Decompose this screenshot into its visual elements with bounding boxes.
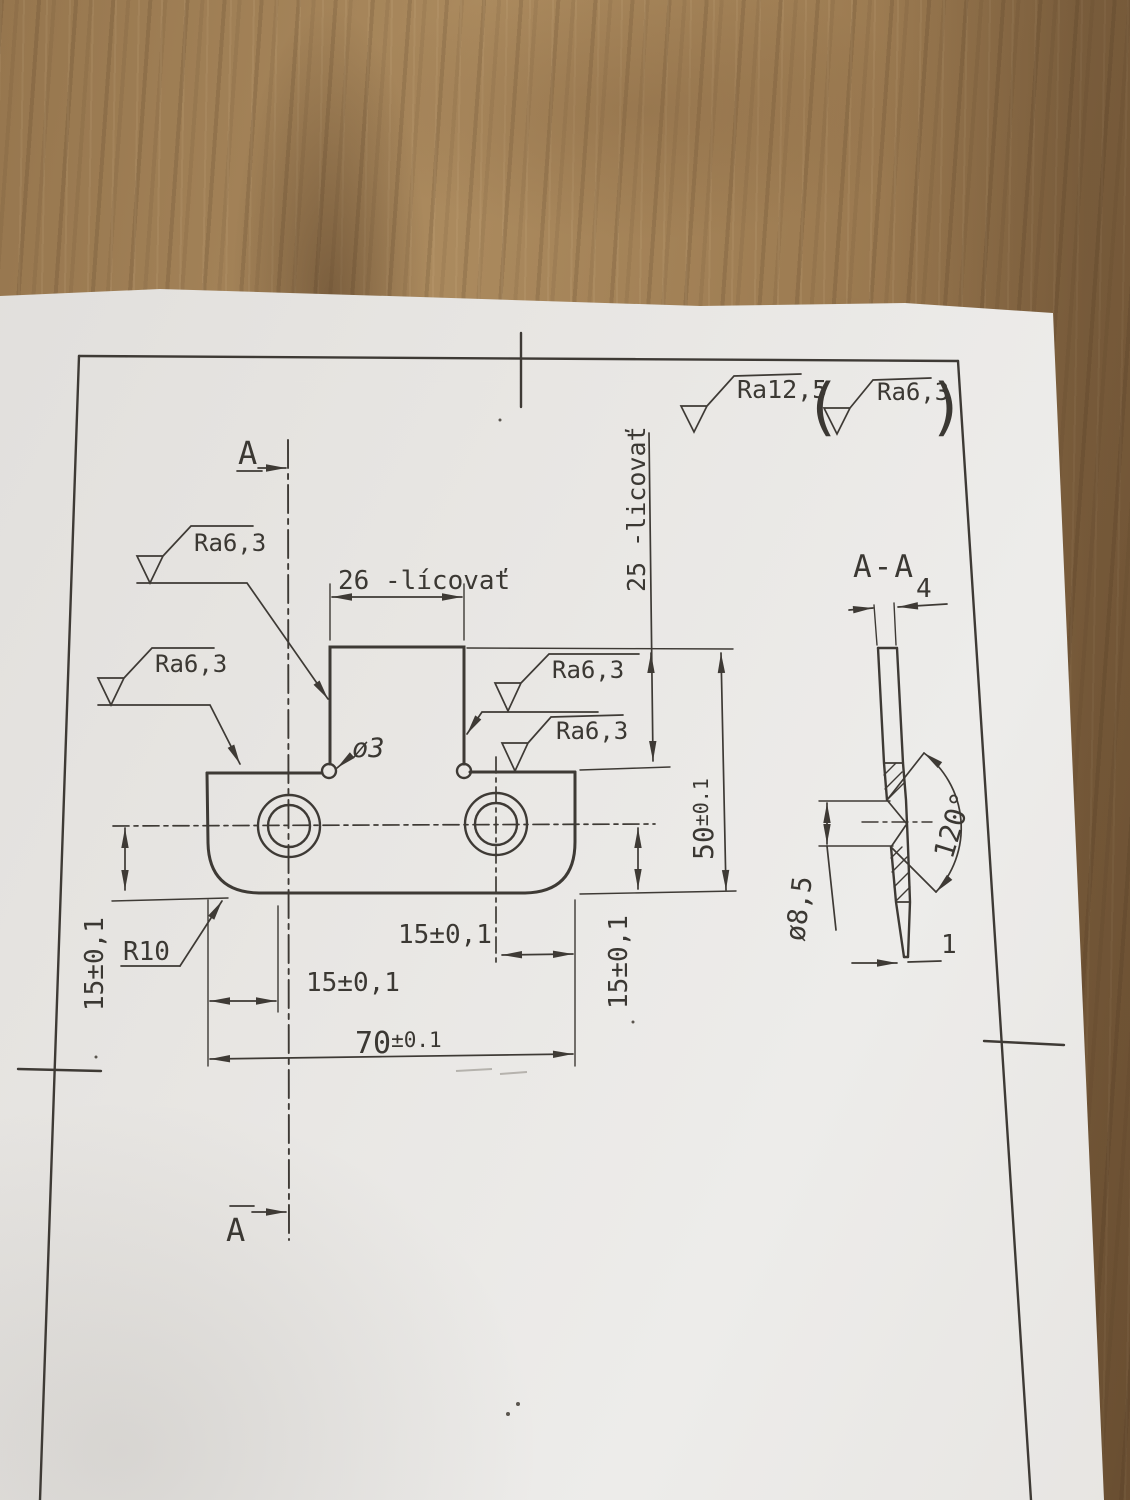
dim-hole-from-right: 15±0,1	[398, 920, 573, 955]
dim-total-width-tol: ±0.1	[391, 1028, 442, 1052]
dim-thickness-label: 4	[916, 574, 932, 604]
section-body	[862, 648, 932, 957]
dim-tab-width: 26 -lícovať	[330, 566, 510, 640]
paren-close: )	[928, 370, 965, 443]
dim-hole-from-left-label: 15±0,1	[306, 968, 400, 998]
section-title: A-A	[853, 549, 915, 585]
drawing-frame	[18, 333, 1064, 1500]
corner-radius-label: R10	[123, 937, 170, 967]
dim-hole-height-left: 15±0,1	[80, 828, 228, 1011]
dim-hole-from-left: 15±0,1	[210, 906, 400, 1012]
section-cut-line	[288, 440, 289, 1240]
cut-label-top: A	[238, 434, 257, 472]
dim-hole-height-right-label: 15±0,1	[604, 915, 634, 1009]
section-view: A-A	[780, 549, 978, 963]
section-cut-arrow-bottom: A	[226, 1206, 286, 1249]
dim-total-height: 50±0.1	[580, 653, 736, 894]
roughness-notch-right-label: Ra6,3	[552, 656, 624, 684]
dim-hole-height-left-label: 15±0,1	[80, 917, 110, 1011]
centering-mark-right	[984, 1041, 1064, 1045]
dim-countersink-dia-label: ø8,5	[780, 875, 819, 943]
main-view: A A 26 -lícovať	[80, 426, 736, 1249]
roughness-top-edge-label: Ra6,3	[556, 717, 628, 745]
relief-hole-left	[322, 764, 336, 778]
dim-upper-height-label: 25 -licovať	[622, 426, 651, 592]
photo-of-technical-drawing: Ra12,5 ( Ra6,3 )	[0, 0, 1130, 1500]
dim-edge-land-label: 1	[941, 930, 957, 960]
relief-hole-label: ø3	[352, 733, 385, 764]
roughness-callout-top-edge: Ra6,3	[502, 715, 628, 771]
dim-total-height-label: 50±0.1	[687, 778, 720, 860]
cut-label-bottom: A	[226, 1211, 245, 1249]
dim-hole-height-right: 15±0,1	[604, 828, 638, 1009]
centering-mark-left	[18, 1069, 101, 1071]
roughness-callout-edge-left: Ra6,3	[98, 648, 240, 764]
roughness-notch-left-label: Ra6,3	[194, 529, 266, 557]
section-hatching	[884, 763, 910, 901]
dim-hole-from-right-label: 15±0,1	[398, 920, 492, 950]
dim-tab-width-label: 26 -lícovať	[338, 566, 510, 596]
section-cut-arrow-top: A	[237, 434, 286, 472]
dim-total-width-value: 70	[355, 1026, 391, 1061]
general-roughness-note: Ra12,5 ( Ra6,3 )	[681, 370, 965, 443]
dim-corner-radius: R10	[121, 901, 222, 967]
dim-total-height-tol: ±0.1	[689, 778, 713, 826]
dim-total-height-value: 50	[687, 826, 720, 860]
roughness-edge-left-label: Ra6,3	[155, 650, 227, 678]
countersink-cone	[887, 800, 906, 847]
dim-relief-hole: ø3	[337, 733, 385, 768]
tab-outline	[330, 647, 464, 764]
dim-countersink-angle-label: 120°	[927, 788, 978, 862]
